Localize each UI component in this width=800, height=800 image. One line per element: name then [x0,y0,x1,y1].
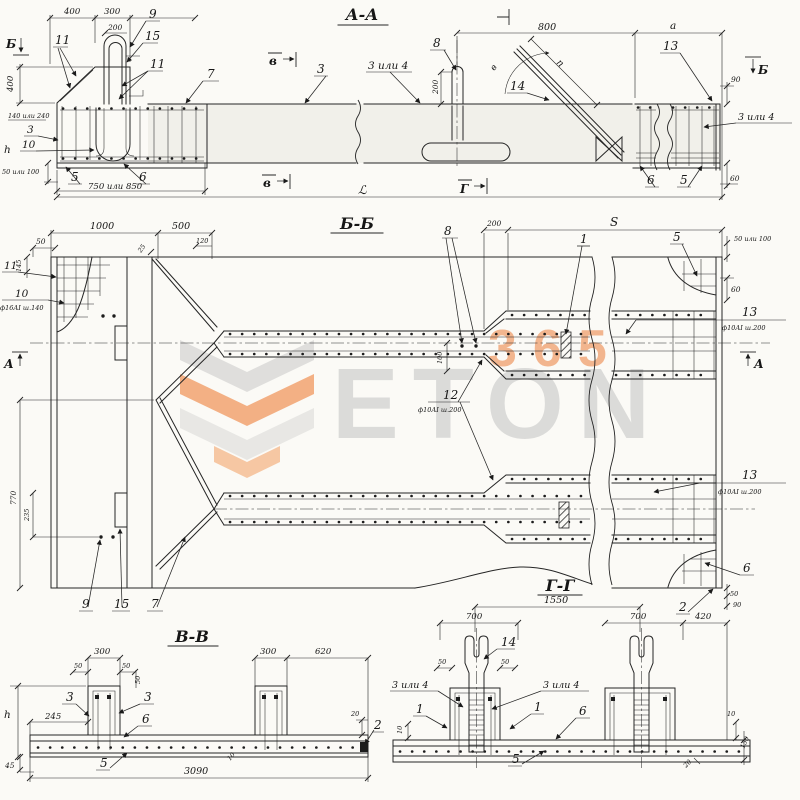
aa-marker-label: в [269,54,277,68]
aa-section-markers [13,9,761,194]
watermark: ETON 365 [180,320,664,478]
bb-label: 1 [580,232,588,246]
bb-dim: 120 [196,237,208,245]
bb-embed-plate-bottom [559,502,569,528]
vv-dim: 50 [134,676,142,684]
bb-label: 5 [673,230,681,244]
bb-dim: 60 [731,285,741,294]
aa-marker-label: Г [459,182,469,196]
aa-label: 5 [71,170,79,184]
aa-label: 10 [22,139,36,151]
aa-label: 15 [145,29,160,43]
aa-dim: 400 [63,7,81,17]
bb-label: 12 [443,388,458,402]
vv-dim: 300 [260,647,277,657]
gg-dim: 20 [681,758,693,770]
aa-slab-body [148,104,720,163]
vv-leaders [62,704,384,770]
bb-label: 15 [114,597,129,611]
bb-bottom-rib-band [224,475,716,543]
bb-note: ф10АI ш.200 [722,324,766,332]
vv-dim: 300 [94,647,111,657]
bb-corner-mesh [57,257,110,332]
vv-label: 3 [66,690,74,704]
aa-marker-label: Б [5,37,16,51]
vv-texts: В-В 300 50 50 50 300 620 245 h 45 3 3 6 … [4,627,382,777]
vv-dim: 50 [122,662,130,670]
aa-label: 6 [647,173,655,187]
aa-label: 3 или 4 [738,112,774,123]
vv-dim: 245 [44,712,61,722]
aa-dim: 90 [731,75,741,84]
vv-title: В-В [174,627,209,646]
aa-marker-label: Б [757,63,768,77]
section-a-a: А-А 400 300 200 Б 400 140 или 240 3 10 h… [2,5,792,246]
drawing-sheet: ETON 365 [0,0,800,800]
vv-dim: 620 [315,647,332,657]
gg-linework [393,628,750,768]
gg-dim: 50 [438,658,446,666]
aa-dim: 800 [538,22,556,33]
section-v-v: В-В 300 50 50 50 300 620 245 h 45 3 3 6 … [4,627,384,782]
section-g-g: Г-Г 1550 700 700 420 50 50 14 3 или 4 3 … [390,576,751,770]
bb-dim: 500 [172,221,190,232]
vv-dim: h [4,709,11,721]
bb-title: Б-Б [339,214,374,233]
bb-dim: 25 [136,243,148,255]
aa-label: 5 [680,173,688,187]
bb-label: 7 [151,597,159,611]
aa-label: 7 [207,67,215,81]
aa-dim: 200 [431,79,440,95]
watermark-number: 365 [488,320,623,378]
aa-label: 14 [510,79,525,93]
bb-dim: 50 или 100 [734,235,771,243]
aa-label: 11 [55,33,70,47]
gg-label: 3 или 4 [392,680,428,691]
gg-texts: Г-Г 1550 700 700 420 50 50 14 3 или 4 3 … [392,576,751,770]
bb-label: 6 [743,561,751,575]
aa-label: 3 [317,62,325,76]
vv-label: 2 [373,718,382,732]
vv-embed-plate [360,742,368,752]
bb-corner-details [668,258,716,587]
gg-label: 14 [501,635,516,649]
gg-dim: 700 [466,612,483,622]
vv-label: 6 [142,712,150,726]
bb-label: 9 [82,597,90,611]
bb-note: ф10АI ш.200 [718,488,762,496]
aa-label: 11 [150,57,165,71]
gg-label: 1 [534,700,542,714]
vv-dim: 20 [350,710,359,718]
gg-lifting-anchor [465,628,488,768]
aa-marker-label: в [263,176,271,190]
aa-dim: ℒ [358,183,367,197]
gg-dim: 10 [727,710,735,718]
gg-dim: 420 [694,612,712,622]
bb-label: 2 [678,600,687,614]
aa-angle: в [489,63,500,73]
gg-lifting-anchor-2 [630,628,653,768]
bb-note: ф10АI ш.200 [418,406,462,414]
aa-label: 6 [139,170,147,184]
bb-dim: 50 [730,590,738,598]
vv-label: 3 [144,690,152,704]
gg-label: 3 или 4 [543,680,579,691]
aa-title: А-А [345,5,379,24]
aa-label: h [4,144,11,156]
bb-dim: 100 [436,352,444,364]
gg-label: 5 [512,752,520,766]
aa-label: 8 [433,36,441,50]
bb-note: ф16АI ш.140 [0,304,44,312]
gg-dim: 50 [501,658,509,666]
aa-label: 3 или 4 [368,60,408,72]
aa-label: 3 [27,124,34,136]
aa-label: 9 [149,7,157,21]
aa-label: 13 [663,39,679,53]
bb-label: 11 [4,260,17,272]
bb-label: 13 [742,305,758,319]
bb-embed-plate-top [561,332,571,358]
aa-dim: 400 [6,75,16,93]
vv-dim: 3090 [184,766,208,777]
bb-dim: 235 [23,509,31,522]
gg-dim: 1550 [544,595,568,606]
vv-dim: 50 [74,662,82,670]
aa-dim: 200 [107,23,123,32]
bb-dim: 770 [9,490,18,505]
gg-title: Г-Г [545,576,576,595]
aa-dim: n [554,57,566,69]
gg-dim: 150 [739,735,752,750]
gg-label: 6 [579,704,587,718]
vv-dim: 45 [4,761,15,770]
bb-dim: 90 [733,601,741,609]
aa-dim: 60 [730,174,740,183]
gg-label: 1 [416,702,424,716]
bb-marker-label: А [753,357,764,371]
bb-dim: S [610,215,618,229]
gg-dim: 700 [630,612,647,622]
aa-dim: 750 или 850 [88,182,143,192]
aa-dim: а [670,20,676,32]
aa-dim: 300 [104,7,121,17]
bb-label: 10 [15,288,29,300]
bb-label: 8 [444,224,452,238]
vv-label: 5 [100,756,108,770]
bb-label: 13 [742,468,758,482]
blueprint-canvas: ETON 365 [0,0,800,800]
bb-marker-label: А [3,357,14,371]
bb-dim: 1000 [90,221,114,232]
vv-dimensions [10,655,371,782]
gg-dim: 10 [396,726,404,734]
aa-dim: 140 или 240 [8,112,49,120]
vv-linework [30,686,368,757]
aa-dim: 50 или 100 [2,168,39,176]
bb-dim: 200 [486,219,502,228]
bb-dim: 50 [36,237,46,246]
